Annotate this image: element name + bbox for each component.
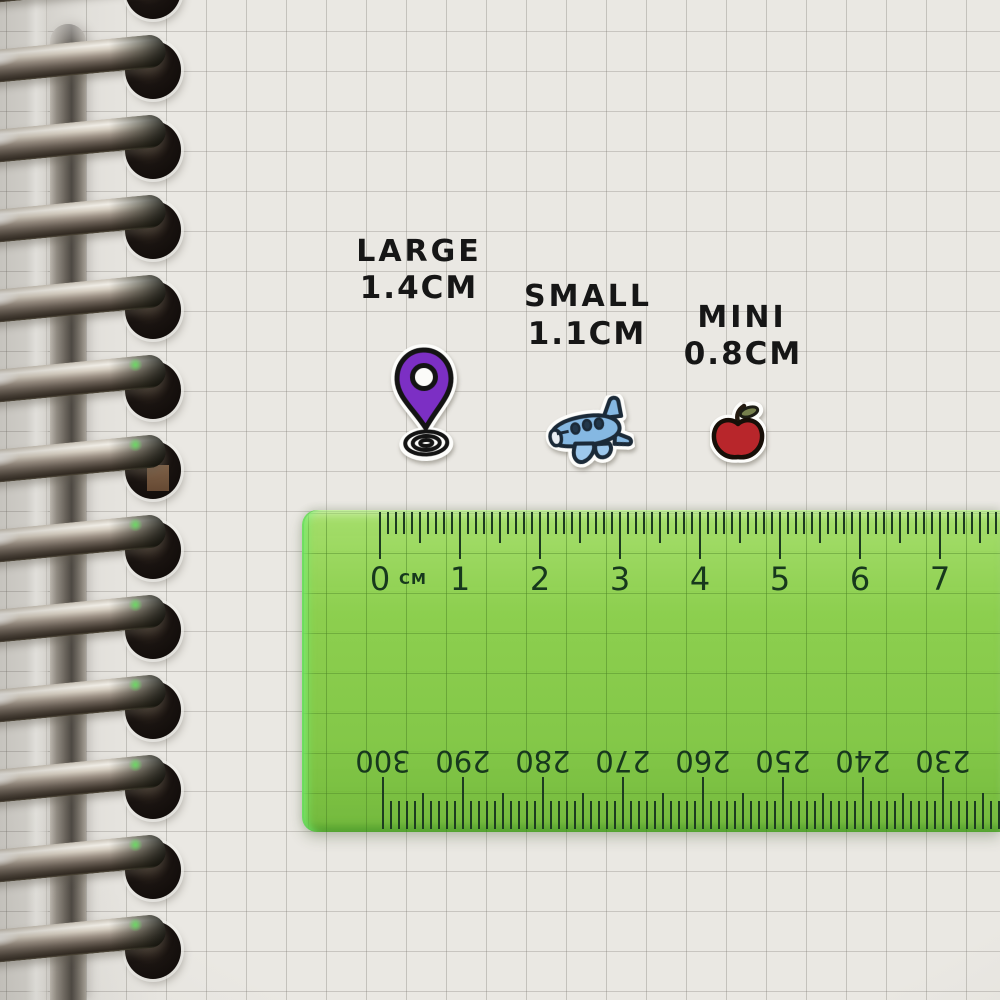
ruler-tick-bottom	[766, 801, 768, 829]
ruler-tick-bottom	[478, 801, 480, 829]
ruler-tick-top	[915, 512, 917, 534]
ruler-tick-top	[987, 512, 989, 534]
ruler-tick-bottom	[414, 801, 416, 829]
ruler-tick-bottom	[510, 801, 512, 829]
ruler-tick-top	[731, 512, 733, 534]
ruler-tick-bottom	[782, 777, 784, 829]
ruler-tick-top	[779, 512, 781, 559]
ruler-tick-bottom	[846, 801, 848, 829]
ruler-tick-top	[507, 512, 509, 534]
ruler-bottom-number: 280	[515, 745, 570, 776]
ruler-unit-label: CM	[399, 570, 427, 588]
ruler-tick-bottom	[534, 801, 536, 829]
ruler-tick-top	[747, 512, 749, 534]
ruler-top-number: 4	[690, 562, 710, 596]
ruler-tick-top	[771, 512, 773, 534]
ruler-tick-bottom	[662, 793, 664, 829]
ruler-tick-bottom	[958, 801, 960, 829]
ruler-tick-top	[395, 512, 397, 534]
ruler-tick-bottom	[462, 777, 464, 829]
ruler-tick-bottom	[790, 801, 792, 829]
ruler-tick-bottom	[646, 801, 648, 829]
ruler-tick-top	[643, 512, 645, 534]
ruler-tick-top	[483, 512, 485, 534]
ruler-tick-bottom	[630, 801, 632, 829]
ruler-tick-top	[435, 512, 437, 534]
ruler-tick-top	[715, 512, 717, 534]
ruler-tick-bottom	[830, 801, 832, 829]
ruler-tick-bottom	[886, 801, 888, 829]
ruler-tick-top	[979, 512, 981, 543]
ruler-tick-top	[931, 512, 933, 534]
ruler-tick-top	[515, 512, 517, 534]
ruler-tick-bottom	[382, 777, 384, 829]
ruler-tick-bottom	[734, 801, 736, 829]
ruler-tick-top	[627, 512, 629, 534]
apple-sticker	[710, 401, 766, 469]
ruler-tick-top	[611, 512, 613, 534]
ruler-tick-top	[867, 512, 869, 534]
ruler-tick-bottom	[718, 801, 720, 829]
ruler-tick-bottom	[566, 801, 568, 829]
ruler-tick-top	[603, 512, 605, 534]
ruler-top-number: 7	[930, 562, 950, 596]
ruler-tick-bottom	[542, 777, 544, 829]
ruler-tick-bottom	[990, 801, 992, 829]
ruler-tick-top	[403, 512, 405, 534]
ruler-tick-top	[875, 512, 877, 534]
ruler-tick-top	[675, 512, 677, 534]
ruler-tick-bottom	[486, 801, 488, 829]
ruler-tick-bottom	[966, 801, 968, 829]
ruler-tick-bottom	[590, 801, 592, 829]
ruler-tick-top	[899, 512, 901, 543]
ruler-tick-top	[683, 512, 685, 534]
ruler-tick-bottom	[918, 801, 920, 829]
ruler-tick-top	[787, 512, 789, 534]
ruler-tick-top	[539, 512, 541, 559]
ruler-tick-bottom	[726, 801, 728, 829]
ruler-tick-bottom	[502, 793, 504, 829]
ruler-tick-top	[971, 512, 973, 534]
ruler-tick-top	[651, 512, 653, 534]
ruler-tick-bottom	[518, 801, 520, 829]
ruler-tick-top	[563, 512, 565, 534]
pin-hole	[412, 365, 436, 389]
airplane-icon	[546, 396, 633, 465]
ruler-tick-top	[835, 512, 837, 534]
punch-hole	[125, 0, 181, 19]
airplane-sticker	[539, 393, 637, 473]
ruler-tick-top	[811, 512, 813, 534]
ruler-tick-bottom	[574, 801, 576, 829]
ruler-tick-top	[883, 512, 885, 534]
ruler-tick-top	[467, 512, 469, 534]
ruler-top-number: 2	[530, 562, 550, 596]
ruler-bottom-number: 270	[595, 745, 650, 776]
ruler-tick-bottom	[638, 801, 640, 829]
ruler-tick-top	[803, 512, 805, 534]
ruler-tick-top	[427, 512, 429, 534]
ruler-tick-bottom	[654, 801, 656, 829]
location-pin-sticker	[389, 343, 461, 471]
ruler-tick-bottom	[742, 793, 744, 829]
ruler-tick-bottom	[822, 793, 824, 829]
ruler-tick-top	[523, 512, 525, 534]
ruler-tick-top	[491, 512, 493, 534]
ruler-tick-bottom	[606, 801, 608, 829]
ruler-tick-top	[659, 512, 661, 543]
ruler-tick-bottom	[854, 801, 856, 829]
ruler-tick-bottom	[702, 777, 704, 829]
ruler-top-number: 1	[450, 562, 470, 596]
ruler-tick-bottom	[422, 793, 424, 829]
ruler-tick-bottom	[550, 801, 552, 829]
ruler-tick-top	[531, 512, 533, 534]
ruler-tick-bottom	[910, 801, 912, 829]
ruler-tick-bottom	[934, 801, 936, 829]
ruler-top-number: 6	[850, 562, 870, 596]
ruler-tick-top	[699, 512, 701, 559]
ruler-tick-top	[891, 512, 893, 534]
ruler-tick-top	[851, 512, 853, 534]
ruler-tick-bottom	[870, 801, 872, 829]
ruler-tick-bottom	[806, 801, 808, 829]
ruler-tick-top	[555, 512, 557, 534]
ruler-tick-bottom	[470, 801, 472, 829]
ruler-tick-top	[755, 512, 757, 534]
ruler-tick-bottom	[894, 801, 896, 829]
ruler-tick-bottom	[406, 801, 408, 829]
ruler-tick-bottom	[494, 801, 496, 829]
ruler-tick-bottom	[710, 801, 712, 829]
ruler-tick-bottom	[622, 777, 624, 829]
ruler-tick-top	[763, 512, 765, 534]
ruler-tick-top	[707, 512, 709, 534]
ruler-bottom-number: 230	[915, 745, 970, 776]
ruler-tick-bottom	[862, 777, 864, 829]
ruler-tick-top	[451, 512, 453, 534]
ruler-tick-bottom	[398, 801, 400, 829]
ruler-tick-top	[499, 512, 501, 543]
ruler-tick-bottom	[446, 801, 448, 829]
ruler-tick-bottom	[814, 801, 816, 829]
ruler-tick-top	[947, 512, 949, 534]
ruler-bottom-number: 240	[835, 745, 890, 776]
ruler-tick-top	[595, 512, 597, 534]
ruler-tick-bottom	[526, 801, 528, 829]
ruler-tick-top	[843, 512, 845, 534]
ruler-top-number: 3	[610, 562, 630, 596]
ruler-tick-bottom	[686, 801, 688, 829]
ruler-tick-bottom	[438, 801, 440, 829]
ruler-tick-top	[419, 512, 421, 543]
ruler-tick-bottom	[838, 801, 840, 829]
ruler-tick-top	[859, 512, 861, 559]
ruler-tick-top	[411, 512, 413, 534]
ruler-tick-bottom	[950, 801, 952, 829]
ruler-tick-bottom	[974, 801, 976, 829]
label-small-size: 1.1CM	[528, 316, 647, 352]
ruler-tick-top	[547, 512, 549, 534]
ruler-tick-bottom	[694, 801, 696, 829]
ruler-tick-top	[579, 512, 581, 543]
ruler-tick-top	[587, 512, 589, 534]
ruler-tick-top	[795, 512, 797, 534]
label-mini-size: 0.8CM	[684, 336, 803, 372]
ruler-tick-bottom	[390, 801, 392, 829]
ruler-tick-bottom	[750, 801, 752, 829]
apple-icon	[714, 405, 762, 457]
label-large-size: 1.4CM	[360, 270, 479, 306]
ruler-tick-bottom	[902, 793, 904, 829]
ruler-tick-top	[923, 512, 925, 534]
ruler-top-number: 0	[370, 562, 390, 596]
ruler-tick-top	[907, 512, 909, 534]
ruler-tick-top	[739, 512, 741, 543]
ruler-tick-bottom	[670, 801, 672, 829]
ruler-tick-top	[723, 512, 725, 534]
label-large-name: LARGE	[356, 234, 482, 269]
ruler-tick-top	[619, 512, 621, 559]
notebook-photo: LARGE 1.4CM SMALL 1.1CM MINI 0.8CM	[0, 0, 1000, 1000]
ruler-tick-bottom	[942, 777, 944, 829]
ruler-tick-bottom	[774, 801, 776, 829]
ruler-tick-top	[571, 512, 573, 534]
ruler-tick-bottom	[614, 801, 616, 829]
ruler-tick-top	[475, 512, 477, 534]
ruler-tick-bottom	[598, 801, 600, 829]
ruler-tick-top	[827, 512, 829, 534]
ruler-tick-top	[443, 512, 445, 534]
ruler-tick-top	[691, 512, 693, 534]
ruler-tick-top	[459, 512, 461, 559]
ruler-bottom-number: 250	[755, 745, 810, 776]
ruler-tick-bottom	[582, 793, 584, 829]
ruler-tick-top	[939, 512, 941, 559]
ruler-bottom-number: 260	[675, 745, 730, 776]
ruler-tick-top	[379, 512, 381, 559]
ruler-tick-bottom	[926, 801, 928, 829]
ruler-tick-bottom	[558, 801, 560, 829]
ruler-tick-top	[387, 512, 389, 534]
ruler-top-number: 5	[770, 562, 790, 596]
ruler-tick-top	[635, 512, 637, 534]
ruler-tick-bottom	[454, 801, 456, 829]
label-small-name: SMALL	[524, 279, 652, 314]
ruler-tick-bottom	[982, 793, 984, 829]
ruler-tick-top	[995, 512, 997, 534]
ruler-bottom-number: 290	[435, 745, 490, 776]
ruler-tick-bottom	[758, 801, 760, 829]
ruler-tick-top	[819, 512, 821, 543]
ruler-tick-top	[955, 512, 957, 534]
ruler-tick-bottom	[678, 801, 680, 829]
label-mini-name: MINI	[697, 300, 786, 335]
ruler-tick-top	[667, 512, 669, 534]
ruler-tick-top	[963, 512, 965, 534]
ruler-tick-bottom	[798, 801, 800, 829]
ruler: CM 01234567 300290280270260250240230	[302, 510, 1000, 832]
ruler-tick-bottom	[878, 801, 880, 829]
ruler-bottom-number: 300	[355, 745, 410, 776]
ruler-tick-bottom	[430, 801, 432, 829]
